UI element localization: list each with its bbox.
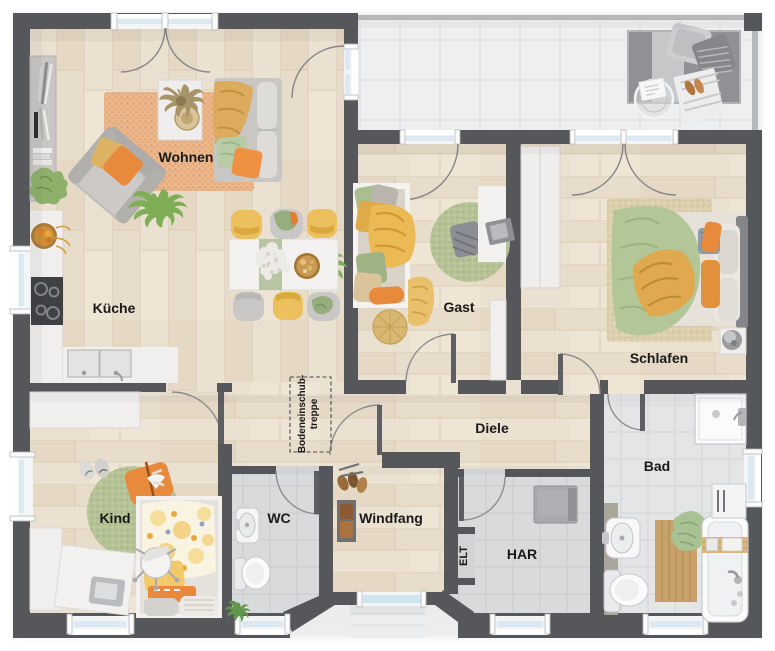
svg-text:Küche: Küche: [93, 300, 136, 316]
svg-text:Bad: Bad: [644, 458, 670, 474]
svg-text:treppe: treppe: [309, 398, 320, 429]
svg-text:Gast: Gast: [443, 299, 474, 315]
svg-text:Diele: Diele: [475, 420, 509, 436]
svg-text:HAR: HAR: [507, 546, 537, 562]
svg-text:Windfang: Windfang: [359, 510, 423, 526]
svg-text:Bodeneinschub-: Bodeneinschub-: [297, 375, 308, 453]
svg-text:ELT: ELT: [458, 546, 470, 566]
svg-text:Wohnen: Wohnen: [159, 149, 214, 165]
svg-text:Kind: Kind: [99, 510, 130, 526]
svg-text:WC: WC: [267, 510, 290, 526]
svg-text:Schlafen: Schlafen: [630, 350, 688, 366]
